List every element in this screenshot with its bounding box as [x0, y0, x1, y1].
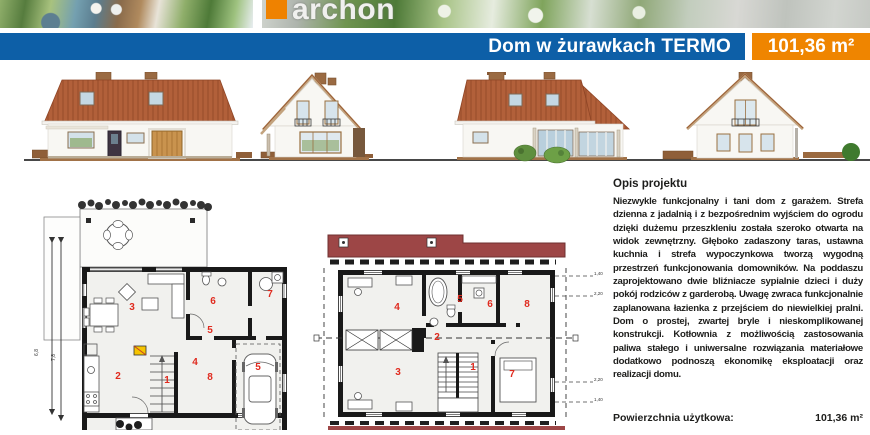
house-photos-banner: archon [0, 0, 870, 28]
project-title-bar: Dom w żurawkach TERMO [0, 33, 745, 60]
roof-height-mark: 1,40 [594, 271, 603, 276]
front-elevation-drawing [32, 72, 252, 164]
room-number: 6 [487, 300, 493, 310]
room-number: 6 [210, 297, 216, 307]
room-number: 8 [524, 300, 530, 310]
room-number: 4 [394, 303, 400, 313]
room-number: 7 [509, 370, 515, 380]
photo-garden-pool [0, 0, 253, 28]
dimension-label: 7,8 [52, 354, 57, 361]
room-number: 7 [267, 290, 273, 300]
room-number: 5 [255, 363, 261, 373]
usable-area-value: 101,36 m² [815, 412, 863, 424]
project-description: Opis projektu Niezwykle funkcjonalny i t… [613, 178, 863, 382]
room-number: 3 [129, 303, 135, 313]
description-heading: Opis projektu [613, 178, 863, 190]
first-floor-plan-drawing [308, 230, 613, 430]
ground-floor-plan: 3 6 7 5 2 1 4 8 5 6,8 7,8 [30, 188, 322, 430]
roof-height-mark: 2,20 [594, 377, 603, 382]
room-number: 1 [470, 363, 476, 373]
first-floor-plan: 4 5 6 8 2 3 1 7 1,40 2,20 2,20 1,40 [308, 230, 613, 430]
usable-area-label: Powierzchnia użytkowa: [613, 412, 734, 424]
room-number: 2 [434, 333, 440, 343]
room-number: 2 [115, 372, 121, 382]
logo-square-icon [266, 0, 287, 19]
room-number: 1 [164, 376, 170, 386]
ground-floor-plan-drawing [30, 188, 322, 430]
room-number: 5 [207, 326, 213, 336]
left-side-elevation-drawing [255, 72, 375, 164]
room-number: 3 [395, 368, 401, 378]
roof-height-mark: 2,20 [594, 291, 603, 296]
right-side-elevation-drawing [655, 72, 870, 164]
dimension-label: 6,8 [35, 349, 40, 356]
logo-text: archon [292, 0, 395, 25]
roof-height-mark: 1,40 [594, 397, 603, 402]
rear-elevation-drawing [445, 72, 660, 164]
area-badge: 101,36 m² [752, 33, 870, 60]
usable-area-summary: Powierzchnia użytkowa: 101,36 m² [613, 412, 863, 424]
room-number: 4 [192, 358, 198, 368]
room-number: 8 [207, 373, 213, 383]
room-number: 5 [457, 295, 463, 305]
description-body: Niezwykle funkcjonalny i tani dom z gara… [613, 195, 863, 382]
archon-logo: archon [266, 0, 395, 25]
